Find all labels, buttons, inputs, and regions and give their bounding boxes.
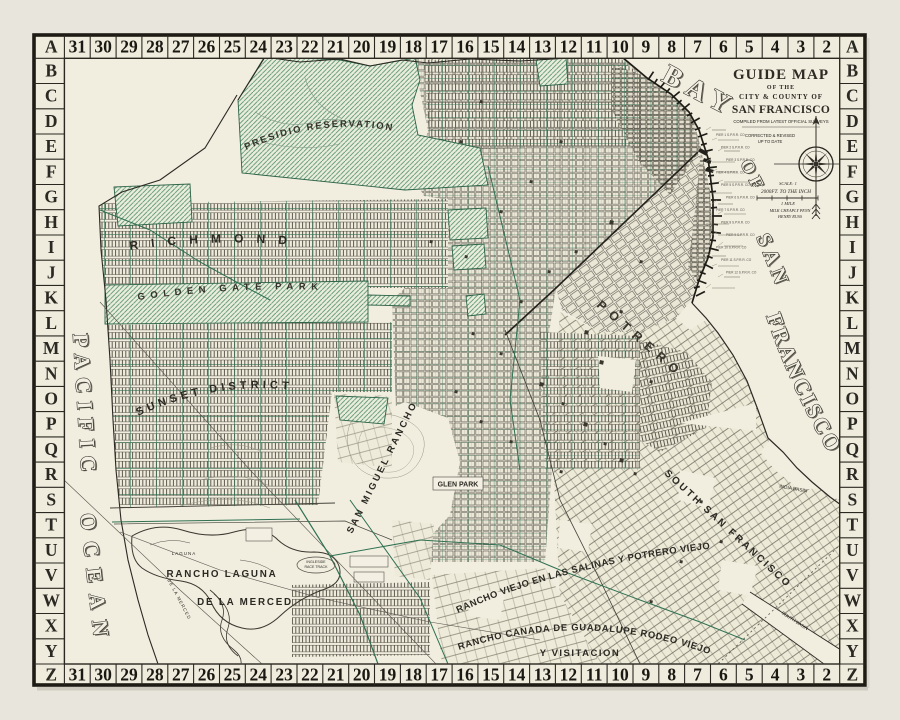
svg-text:V: V	[45, 565, 58, 585]
svg-text:7: 7	[693, 37, 702, 57]
svg-text:16: 16	[456, 665, 474, 685]
svg-text:17: 17	[430, 37, 448, 57]
svg-text:2: 2	[822, 665, 831, 685]
svg-text:X: X	[846, 616, 859, 636]
svg-text:28: 28	[146, 37, 164, 57]
svg-text:P: P	[46, 414, 57, 434]
svg-text:LAGUNA: LAGUNA	[172, 551, 197, 556]
svg-text:B: B	[45, 60, 57, 80]
svg-text:INGLESIDE: INGLESIDE	[306, 560, 326, 564]
svg-text:I: I	[849, 237, 856, 257]
svg-text:15: 15	[482, 665, 500, 685]
svg-text:8: 8	[667, 665, 676, 685]
svg-text:25: 25	[224, 665, 242, 685]
svg-text:W: W	[42, 590, 60, 610]
svg-text:PIER 5 S.P.R.R. CO: PIER 5 S.P.R.R. CO	[721, 183, 750, 187]
svg-text:A: A	[45, 37, 58, 57]
svg-text:U: U	[45, 540, 58, 560]
svg-text:23: 23	[275, 37, 293, 57]
svg-text:RANCHO LAGUNA: RANCHO LAGUNA	[166, 569, 277, 580]
svg-text:F: F	[847, 161, 858, 181]
svg-text:4: 4	[771, 37, 780, 57]
svg-text:PIER 2 S.P.R.R. CO: PIER 2 S.P.R.R. CO	[721, 146, 750, 150]
svg-text:24: 24	[249, 37, 267, 57]
svg-text:21: 21	[327, 665, 345, 685]
svg-text:PIER 8 S.P.R.R. CO: PIER 8 S.P.R.R. CO	[721, 221, 750, 225]
svg-text:1 MILE: 1 MILE	[781, 201, 795, 206]
svg-text:GUIDE MAP: GUIDE MAP	[733, 67, 829, 83]
svg-text:J: J	[848, 262, 857, 282]
svg-text:J: J	[47, 262, 56, 282]
svg-text:Q: Q	[44, 439, 58, 459]
svg-text:8: 8	[667, 37, 676, 57]
svg-text:N: N	[846, 363, 859, 383]
svg-text:Z: Z	[847, 665, 859, 685]
svg-text:CORRECTED & REVISED: CORRECTED & REVISED	[745, 133, 795, 138]
svg-text:N: N	[45, 363, 58, 383]
svg-text:D: D	[846, 111, 859, 131]
svg-text:Y: Y	[846, 641, 859, 661]
svg-text:H: H	[846, 212, 860, 232]
svg-text:M: M	[844, 338, 861, 358]
svg-text:9: 9	[642, 665, 651, 685]
svg-text:S: S	[847, 489, 857, 509]
svg-text:UP TO DATE: UP TO DATE	[758, 139, 783, 144]
svg-text:24: 24	[249, 665, 267, 685]
svg-text:23: 23	[275, 665, 293, 685]
svg-text:GLEN PARK: GLEN PARK	[438, 482, 479, 489]
svg-text:Y: Y	[45, 641, 58, 661]
svg-text:C: C	[846, 86, 859, 106]
svg-text:10: 10	[611, 37, 629, 57]
svg-text:M: M	[43, 338, 60, 358]
svg-text:7: 7	[693, 665, 702, 685]
svg-text:27: 27	[172, 37, 190, 57]
svg-text:26: 26	[198, 665, 216, 685]
svg-text:16: 16	[456, 37, 474, 57]
svg-text:Z: Z	[45, 665, 57, 685]
svg-text:G: G	[44, 187, 58, 207]
svg-text:K: K	[846, 288, 860, 308]
svg-text:4: 4	[771, 665, 780, 685]
svg-text:CITY & COUNTY OF: CITY & COUNTY OF	[739, 93, 823, 101]
svg-text:SAN FRANCISCO: SAN FRANCISCO	[732, 104, 830, 116]
svg-text:19: 19	[379, 37, 397, 57]
svg-text:29: 29	[120, 37, 138, 57]
svg-text:S: S	[46, 489, 56, 509]
svg-text:V: V	[846, 565, 859, 585]
svg-text:19: 19	[379, 665, 397, 685]
svg-text:Q: Q	[846, 439, 860, 459]
svg-text:X: X	[45, 616, 58, 636]
svg-text:18: 18	[405, 665, 423, 685]
svg-text:31: 31	[69, 665, 87, 685]
svg-text:30: 30	[94, 665, 112, 685]
svg-text:17: 17	[430, 665, 448, 685]
svg-text:5: 5	[745, 37, 754, 57]
svg-text:22: 22	[301, 37, 319, 57]
svg-text:3: 3	[797, 665, 806, 685]
svg-text:R: R	[846, 464, 859, 484]
svg-text:13: 13	[534, 665, 552, 685]
svg-text:H: H	[44, 212, 58, 232]
svg-text:HENRY RUSS: HENRY RUSS	[777, 214, 803, 219]
svg-text:21: 21	[327, 37, 345, 57]
svg-text:F: F	[46, 161, 57, 181]
svg-text:O: O	[44, 389, 58, 409]
svg-text:SCALE: 1: SCALE: 1	[779, 181, 797, 186]
svg-text:MILK CHEAPLY PENN: MILK CHEAPLY PENN	[769, 208, 811, 213]
svg-text:L: L	[45, 313, 57, 333]
svg-text:U: U	[846, 540, 859, 560]
svg-text:6: 6	[719, 665, 728, 685]
svg-text:G: G	[846, 187, 860, 207]
svg-text:K: K	[44, 288, 58, 308]
svg-text:14: 14	[508, 37, 526, 57]
svg-text:31: 31	[69, 37, 87, 57]
svg-text:B: B	[847, 60, 859, 80]
svg-text:O: O	[846, 389, 860, 409]
svg-text:RACE TRACK: RACE TRACK	[304, 565, 328, 569]
svg-text:R: R	[45, 464, 58, 484]
svg-text:10: 10	[611, 665, 629, 685]
svg-text:PIER 7 S.P.R.R. CO: PIER 7 S.P.R.R. CO	[716, 208, 745, 212]
svg-text:E: E	[45, 136, 57, 156]
svg-text:20: 20	[353, 665, 371, 685]
svg-text:14: 14	[508, 665, 526, 685]
svg-text:2000FT. TO THE INCH: 2000FT. TO THE INCH	[761, 189, 811, 195]
svg-text:22: 22	[301, 665, 319, 685]
svg-text:9: 9	[642, 37, 651, 57]
svg-text:D: D	[45, 111, 58, 131]
svg-text:12: 12	[560, 665, 578, 685]
svg-text:11: 11	[586, 37, 603, 57]
svg-text:28: 28	[146, 665, 164, 685]
svg-text:T: T	[45, 515, 57, 535]
svg-text:PIER 10 S.P.R.R. CO: PIER 10 S.P.R.R. CO	[716, 246, 747, 250]
svg-text:OF THE: OF THE	[767, 85, 795, 91]
svg-text:PIER 1 S.P.R.R. CO: PIER 1 S.P.R.R. CO	[716, 133, 745, 137]
svg-text:3: 3	[797, 37, 806, 57]
svg-text:12: 12	[560, 37, 578, 57]
svg-text:13: 13	[534, 37, 552, 57]
svg-text:L: L	[847, 313, 859, 333]
svg-text:I: I	[48, 237, 55, 257]
svg-text:30: 30	[94, 37, 112, 57]
svg-text:T: T	[847, 515, 859, 535]
svg-text:27: 27	[172, 665, 190, 685]
svg-text:5: 5	[745, 665, 754, 685]
svg-text:18: 18	[405, 37, 423, 57]
svg-text:PIER 9 S.P.R.R. CO: PIER 9 S.P.R.R. CO	[726, 233, 755, 237]
svg-text:6: 6	[719, 37, 728, 57]
svg-text:Y VISITACION: Y VISITACION	[540, 648, 620, 659]
svg-text:C: C	[45, 86, 58, 106]
svg-text:26: 26	[198, 37, 216, 57]
svg-text:2: 2	[822, 37, 831, 57]
svg-text:E: E	[847, 136, 859, 156]
svg-text:15: 15	[482, 37, 500, 57]
svg-text:W: W	[844, 590, 862, 610]
svg-text:PIER 12 S.P.R.R. CO: PIER 12 S.P.R.R. CO	[726, 271, 757, 275]
svg-text:DE LA MERCED: DE LA MERCED	[197, 597, 293, 608]
svg-text:P: P	[847, 414, 858, 434]
svg-text:PIER 11 S.P.R.R. CO: PIER 11 S.P.R.R. CO	[721, 258, 752, 262]
svg-text:20: 20	[353, 37, 371, 57]
svg-text:29: 29	[120, 665, 138, 685]
svg-text:PIER 6 S.P.R.R. CO: PIER 6 S.P.R.R. CO	[726, 196, 755, 200]
svg-text:A: A	[846, 37, 859, 57]
svg-text:11: 11	[586, 665, 603, 685]
svg-text:25: 25	[224, 37, 242, 57]
